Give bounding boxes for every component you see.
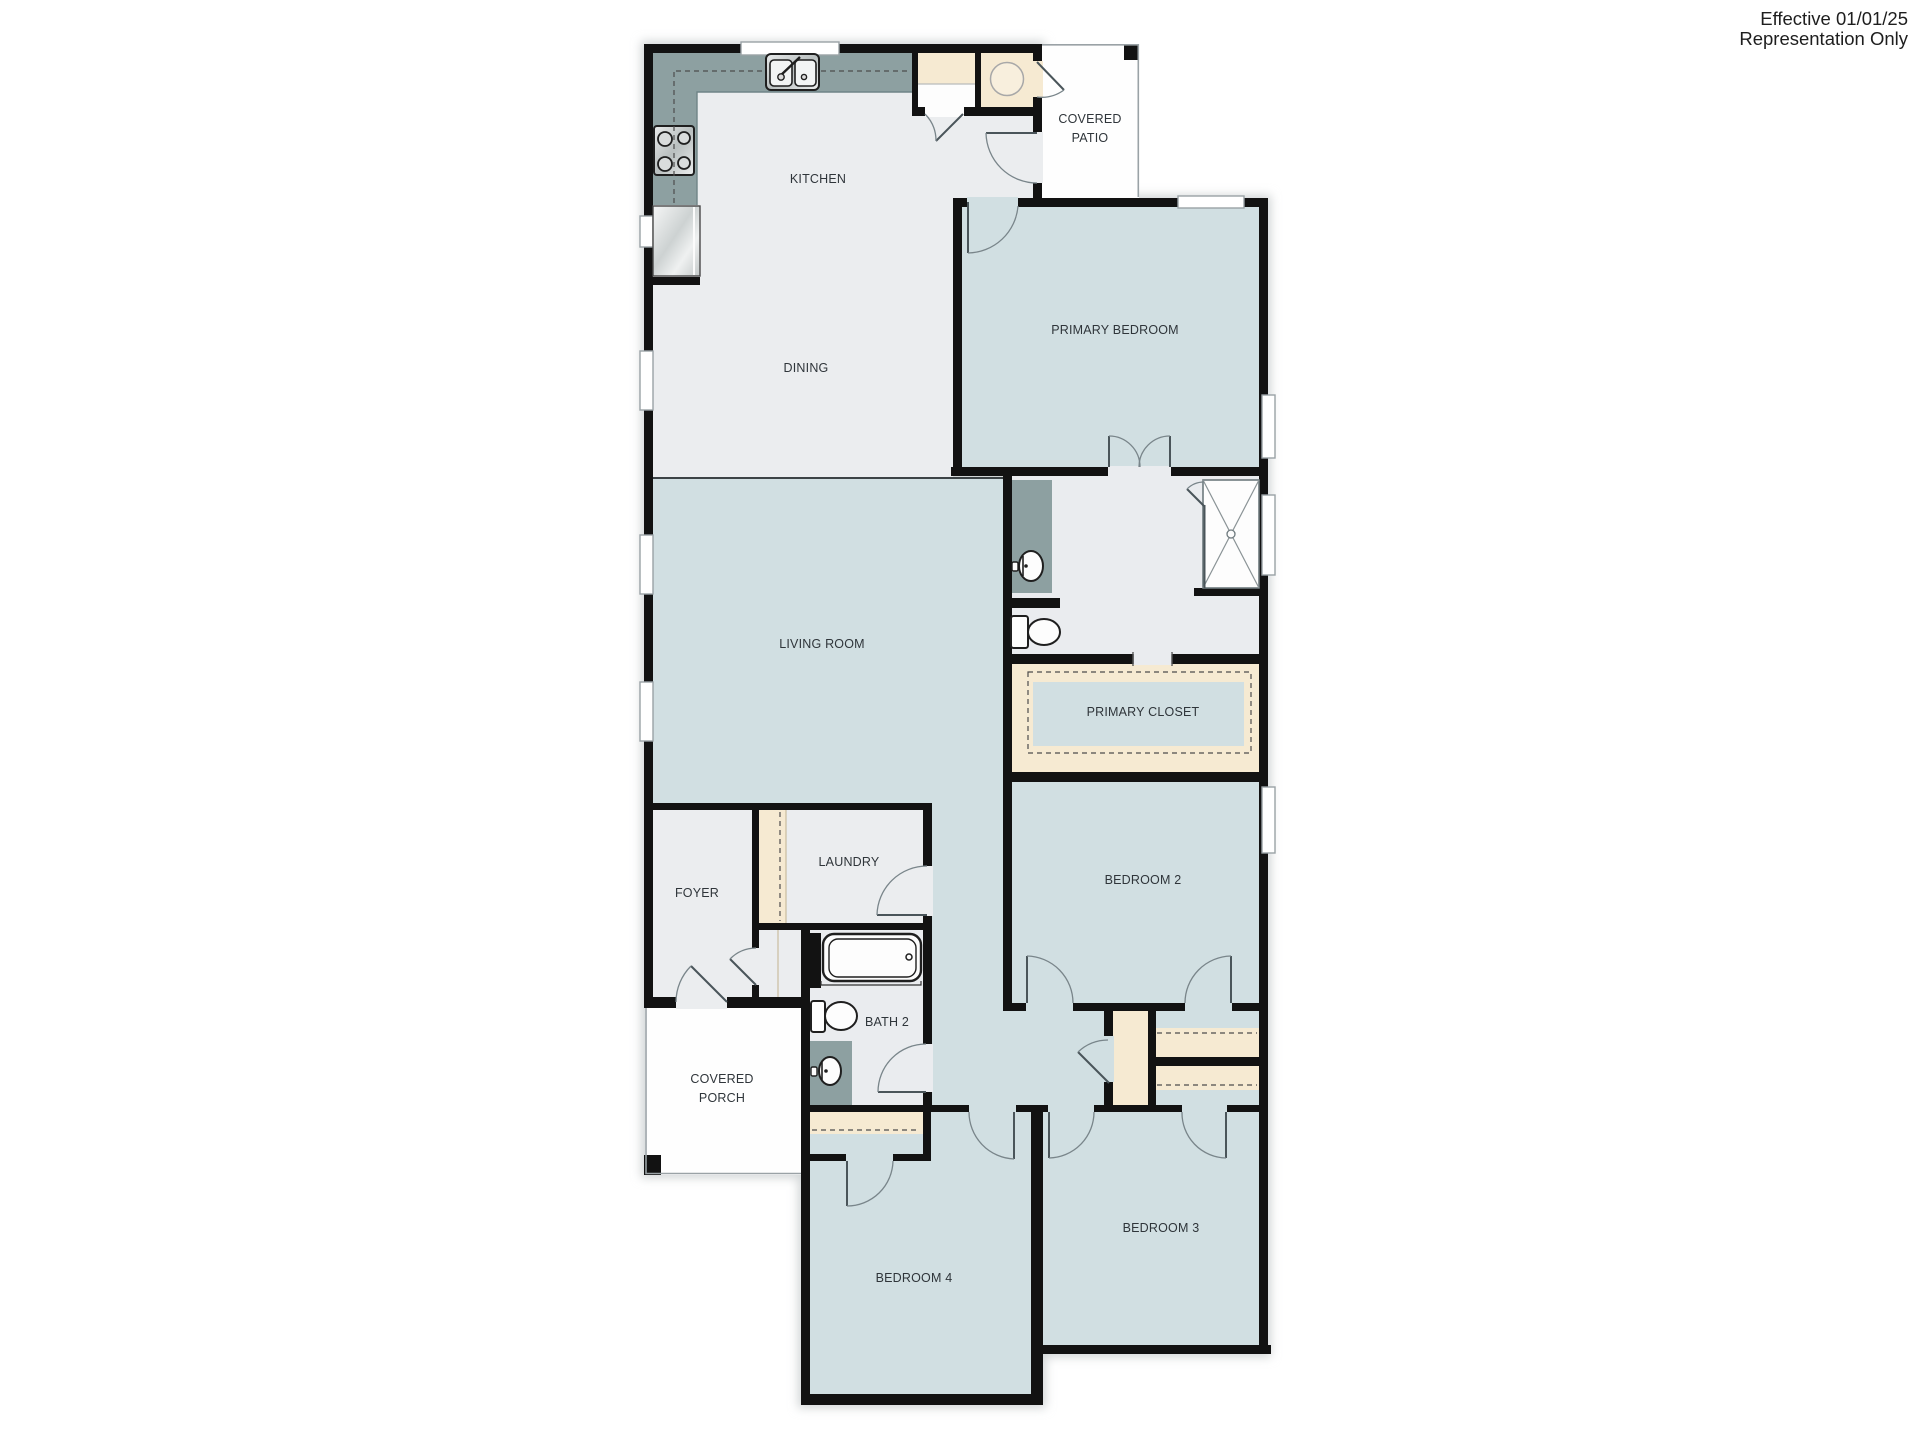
svg-text:DINING: DINING	[784, 361, 829, 375]
svg-text:LIVING ROOM: LIVING ROOM	[779, 637, 865, 651]
svg-text:KITCHEN: KITCHEN	[790, 172, 846, 186]
svg-text:COVERED: COVERED	[690, 1072, 753, 1086]
svg-text:LAUNDRY: LAUNDRY	[819, 855, 880, 869]
svg-text:COVERED: COVERED	[1058, 112, 1121, 126]
svg-text:PRIMARY BEDROOM: PRIMARY BEDROOM	[1051, 323, 1179, 337]
svg-text:BEDROOM 2: BEDROOM 2	[1105, 873, 1182, 887]
svg-text:PATIO: PATIO	[1072, 131, 1109, 145]
svg-text:PRIMARY CLOSET: PRIMARY CLOSET	[1087, 705, 1200, 719]
svg-text:PORCH: PORCH	[699, 1091, 745, 1105]
svg-text:BEDROOM 3: BEDROOM 3	[1123, 1221, 1200, 1235]
svg-text:FOYER: FOYER	[675, 886, 719, 900]
svg-text:Effective 01/01/25: Effective 01/01/25	[1760, 8, 1908, 29]
svg-text:Representation Only: Representation Only	[1739, 28, 1908, 49]
svg-text:BEDROOM 4: BEDROOM 4	[876, 1271, 953, 1285]
svg-text:BATH 2: BATH 2	[865, 1015, 909, 1029]
